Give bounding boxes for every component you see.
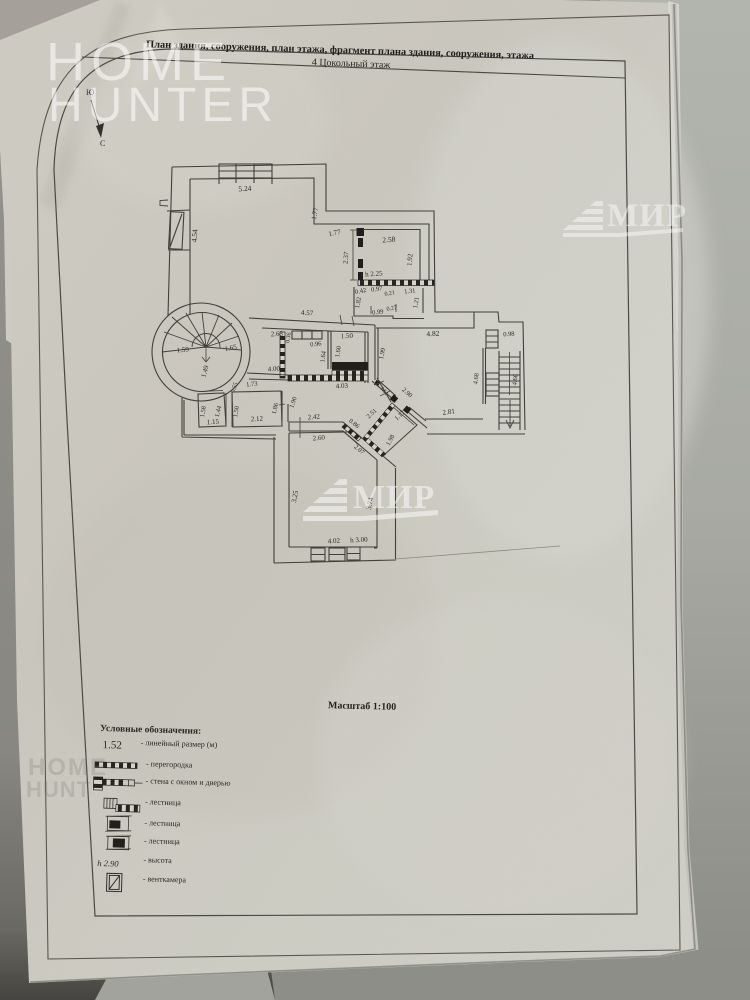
svg-text:2.12: 2.12	[251, 415, 264, 424]
svg-text:1.31: 1.31	[404, 287, 416, 295]
svg-text:- лестница: - лестница	[144, 818, 181, 828]
svg-text:- лестница: - лестница	[145, 797, 182, 807]
svg-text:4.82: 4.82	[426, 329, 440, 339]
svg-text:HUNT: HUNT	[26, 777, 91, 802]
svg-text:4.00: 4.00	[267, 365, 280, 374]
svg-text:1.15: 1.15	[207, 418, 220, 427]
svg-text:h 2.25: h 2.25	[365, 269, 384, 278]
svg-text:4.02: 4.02	[328, 537, 341, 546]
svg-text:С: С	[100, 139, 105, 148]
svg-text:1.59: 1.59	[176, 345, 190, 354]
svg-text:2.37: 2.37	[341, 251, 350, 265]
svg-text:h 3.00: h 3.00	[350, 536, 368, 545]
svg-text:2.63: 2.63	[271, 330, 284, 339]
svg-text:1.52: 1.52	[102, 739, 122, 752]
svg-text:5.24: 5.24	[238, 184, 252, 194]
svg-text:2.60: 2.60	[312, 433, 325, 442]
svg-text:1.73: 1.73	[246, 380, 258, 388]
svg-text:- высота: - высота	[143, 855, 172, 865]
svg-text:0.96: 0.96	[310, 340, 323, 348]
svg-text:4.54: 4.54	[190, 229, 200, 243]
svg-text:МИР: МИР	[353, 479, 435, 516]
svg-text:Масштаб 1:100: Масштаб 1:100	[328, 700, 396, 713]
svg-text:h 2.90: h 2.90	[97, 858, 119, 869]
svg-text:- перегородка: - перегородка	[146, 759, 193, 769]
svg-text:- лестница: - лестница	[144, 836, 181, 846]
svg-text:4.57: 4.57	[301, 309, 314, 318]
svg-text:4.03: 4.03	[336, 382, 349, 391]
svg-text:0.99: 0.99	[372, 308, 384, 316]
svg-text:- венткамера: - венткамера	[143, 874, 187, 884]
svg-text:МИР: МИР	[607, 198, 687, 234]
svg-text:2.58: 2.58	[382, 235, 396, 245]
svg-text:1.92: 1.92	[405, 253, 414, 266]
svg-text:2.42: 2.42	[307, 412, 320, 421]
svg-text:HUNTER: HUNTER	[48, 79, 278, 132]
svg-text:0.98: 0.98	[503, 331, 515, 339]
svg-text:1.50: 1.50	[340, 332, 353, 341]
